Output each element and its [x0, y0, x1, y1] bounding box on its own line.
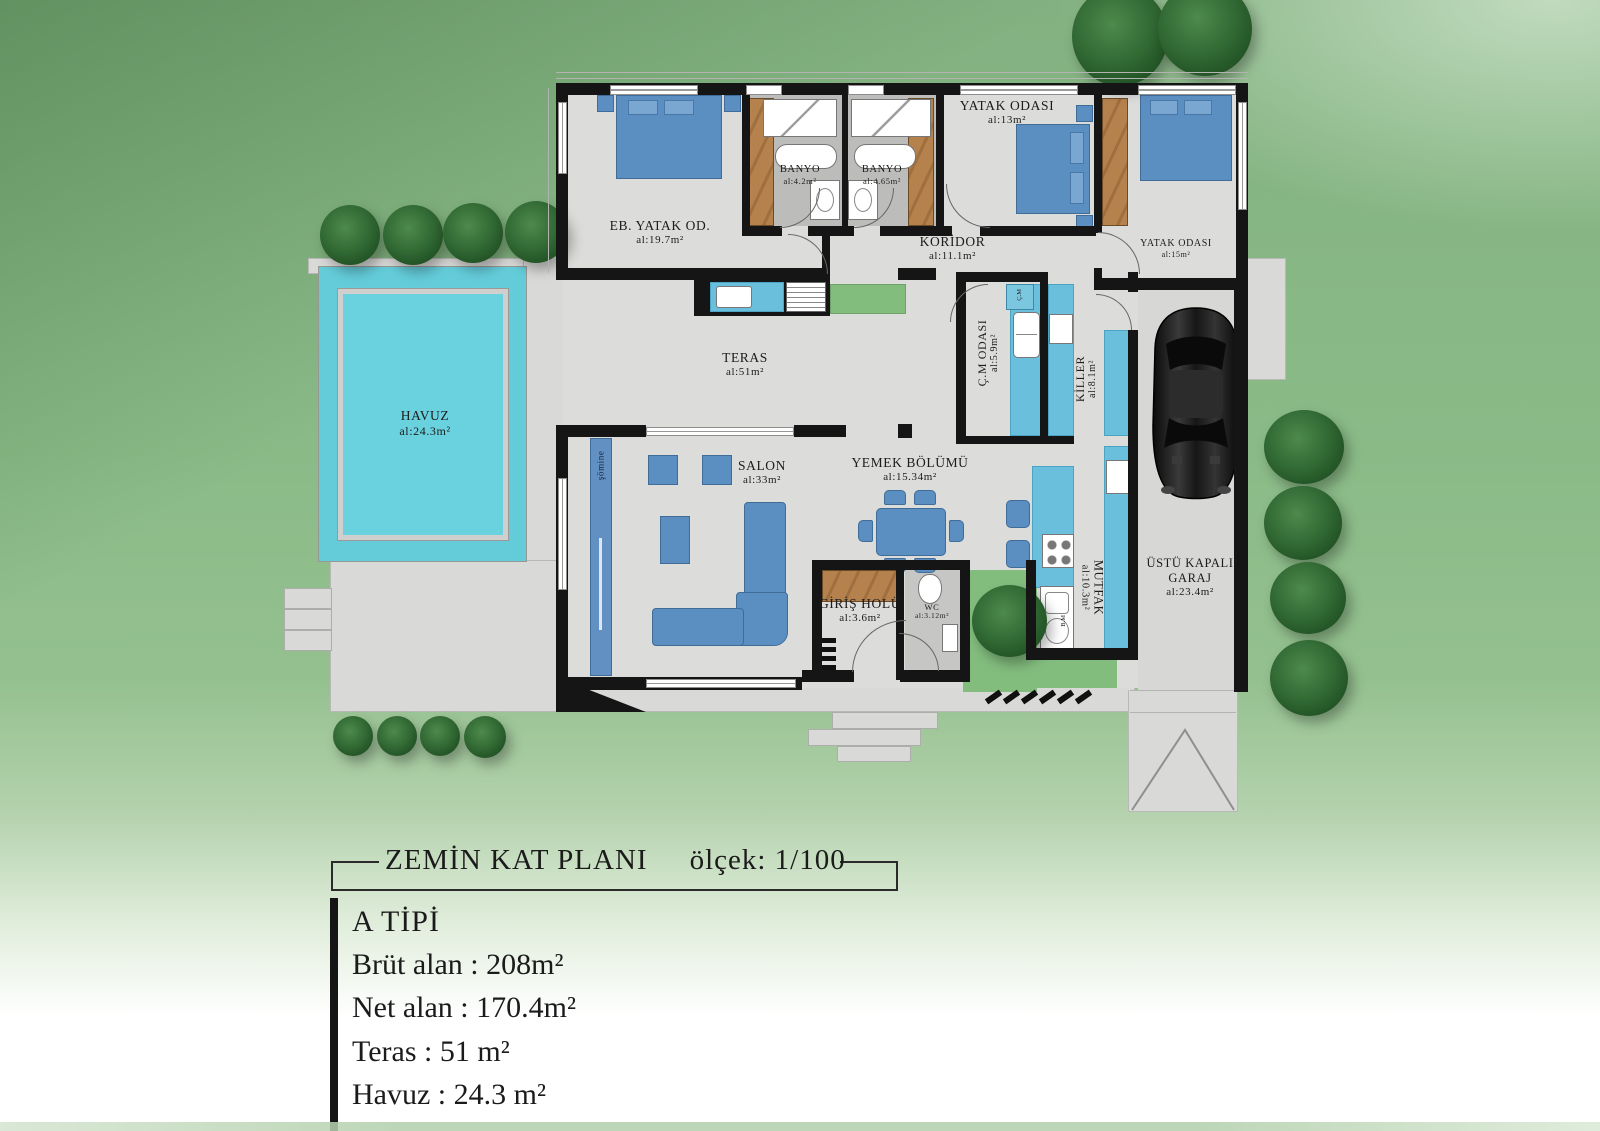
wall-bath-divider [842, 93, 848, 228]
laundry-sink [1013, 312, 1040, 358]
site-plan-canvas: HAVUZ al:24.3m² [0, 0, 1600, 1131]
armchair-1 [648, 455, 678, 485]
wall-bedroom23-a [1094, 83, 1102, 233]
room-label-garage: ÜSTÜ KAPALI GARAJ al:23.4m² [1140, 556, 1240, 598]
coffee-table [660, 516, 690, 564]
wall-kitchen-left-low [1026, 560, 1036, 658]
shower-2 [851, 99, 931, 137]
wall-pantry-right-b [1128, 330, 1138, 448]
dining-chair-2 [914, 490, 936, 505]
fireplace-label: şömine [596, 430, 607, 500]
bush-right-3 [1270, 562, 1346, 634]
window-bath1-top [746, 85, 782, 95]
shower-1 [763, 99, 837, 137]
entry-blind-2 [822, 647, 836, 652]
pool-area: Havuz : 24.3 m² [352, 1073, 772, 1116]
sofa-horizontal [652, 608, 744, 646]
tree-top-2 [1158, 0, 1252, 76]
wall-salon-top-b [794, 425, 846, 437]
dining-chair-6 [949, 520, 964, 542]
wall-master-right [742, 88, 750, 228]
window-bedroom2-top [960, 85, 1078, 95]
wall-master-bottom [556, 268, 706, 280]
wall-bath-bottom-1 [742, 226, 782, 236]
bedroom3-pillow-right [1184, 100, 1212, 115]
bush-right-1 [1264, 410, 1344, 484]
wall-terrace-right-stub [898, 268, 936, 280]
terrace-area: Teras : 51 m² [352, 1030, 772, 1073]
wardrobe-bedroom3 [1102, 98, 1128, 226]
terrace-bar-sink [716, 286, 752, 308]
net-area: Net alan : 170.4m² [352, 986, 772, 1029]
driveway-line [1130, 690, 1236, 691]
bush-right-4 [1270, 640, 1348, 716]
kitchen-island [1032, 466, 1074, 588]
room-label-bathroom1: BANYO al:4.2m² [762, 164, 838, 186]
window-bedroom3-right [1238, 102, 1247, 210]
gross-area: Brüt alan : 208m² [352, 943, 772, 986]
tree-top-1 [1072, 0, 1168, 86]
pool-steps-3 [284, 630, 332, 651]
window-salon-left [558, 478, 567, 590]
eave-line-top-1 [556, 72, 1248, 73]
wall-bedroom3-bottom [1094, 278, 1248, 290]
tree-pool-1 [320, 205, 380, 265]
master-nightstand-left [597, 95, 614, 112]
wall-terrace-post [898, 424, 912, 438]
wall-kitchen-right [1128, 448, 1138, 658]
pantry-counter-left [1048, 284, 1074, 436]
kitchen-fridge [1106, 460, 1130, 494]
window-bath2-top [848, 85, 884, 95]
terrace-planter [830, 284, 906, 314]
window-bedroom3-top [1138, 85, 1236, 95]
eave-line-top-2 [556, 78, 1248, 79]
info-block: A TİPİ Brüt alan : 208m² Net alan : 170.… [352, 900, 772, 1116]
wall-bath-bottom-2 [808, 226, 854, 236]
wall-garage-right [1234, 278, 1248, 692]
pool-steps-2 [284, 609, 332, 630]
room-label-bedroom2: YATAK ODASI al:13m² [932, 98, 1082, 127]
info-bar [330, 898, 338, 1131]
pantry-appliance [1049, 314, 1073, 344]
kitchen-stove [1042, 534, 1074, 568]
dining-table [876, 508, 946, 556]
wall-pantry-right-a [1128, 272, 1138, 292]
tree-bottom-1 [333, 716, 373, 756]
room-label-kitchen: MUTFAK al:10.3m² [1078, 526, 1105, 650]
pantry-counter-right [1104, 330, 1130, 436]
room-label-wc: WC al:3.12m² [902, 602, 962, 621]
master-bed-pillow-right [664, 100, 694, 115]
entry-blind-1 [822, 638, 836, 643]
type-label: A TİPİ [352, 900, 772, 943]
window-salon-bottom [646, 679, 796, 688]
room-label-laundry: Ç.M ODASI al:5.9m² [975, 293, 1001, 413]
dishwasher-label: B.M [1060, 607, 1068, 635]
master-nightstand-right [724, 95, 741, 112]
room-label-pantry: KİLLER al:8.1m² [1073, 319, 1099, 439]
wall-laundry-pantry [1040, 272, 1048, 444]
bush-right-2 [1264, 486, 1342, 560]
washing-machine-label: Ç.M [1016, 281, 1024, 309]
pool-deck-bottom [330, 560, 565, 712]
room-label-corridor: KORİDOR al:11.1m² [895, 234, 1010, 263]
plan-title-row: ZEMİN KAT PLANIölçek: 1/100 [385, 844, 885, 877]
driveway-chevron [1130, 726, 1236, 812]
room-label-bathroom2: BANYO al:4.65m² [844, 164, 920, 186]
wc-sink [942, 624, 958, 652]
wall-laundry-bottom [956, 436, 1074, 444]
bedroom2-pillow-bottom [1070, 172, 1084, 204]
title-box-tick-left [331, 861, 379, 863]
window-master-top [610, 85, 698, 95]
plan-title: ZEMİN KAT PLANI [385, 844, 648, 876]
wall-corner-wedge [556, 677, 646, 712]
bedroom3-pillow-left [1150, 100, 1178, 115]
eave-line-left [548, 88, 549, 273]
laundry-sink-divider [1016, 334, 1037, 335]
tree-pool-2 [383, 205, 443, 265]
tree-bottom-4 [464, 716, 506, 758]
window-salon-top [646, 427, 794, 436]
wall-kitchen-bottom [1026, 648, 1138, 660]
garage-side-pad [1246, 258, 1286, 380]
wall-laundry-top [956, 272, 1048, 282]
driveway-line2 [1130, 712, 1236, 713]
room-label-dining: YEMEK BÖLÜMÜ al:15.34m² [830, 455, 990, 484]
wall-entry-bottom-a [802, 670, 854, 682]
car [1150, 306, 1242, 502]
entry-steps-3 [837, 746, 911, 762]
tree-pool-3 [443, 203, 503, 263]
room-label-terrace: TERAS al:51m² [690, 350, 800, 379]
room-label-living-room: SALON al:33m² [707, 458, 817, 487]
entry-blind-3 [822, 656, 836, 661]
tree-bottom-2 [377, 716, 417, 756]
dining-chair-1 [884, 490, 906, 505]
room-label-master-bedroom: EB. YATAK OD. al:19.7m² [580, 218, 740, 247]
entry-steps-2 [808, 729, 921, 746]
wc-toilet [918, 574, 942, 604]
room-label-bedroom3: YATAK ODASI al:15m² [1116, 238, 1236, 259]
pool-steps-1 [284, 588, 332, 609]
room-label-pool: HAVUZ al:24.3m² [360, 408, 490, 438]
window-master-left [558, 102, 567, 174]
fireplace-slot [599, 538, 602, 630]
tree-bottom-3 [420, 716, 460, 756]
dining-chair-5 [858, 520, 873, 542]
bar-stool-1 [1006, 500, 1030, 528]
master-bed-pillow-left [628, 100, 658, 115]
entry-steps-1 [832, 712, 938, 729]
bedroom2-pillow-top [1070, 132, 1084, 164]
sofa-vertical [744, 502, 786, 606]
bottom-green-strip [0, 1122, 1600, 1131]
plan-scale: ölçek: 1/100 [690, 844, 846, 876]
entry-blind-4 [822, 665, 836, 670]
terrace-stairs-hatch [786, 282, 826, 312]
wall-entry-top [812, 560, 970, 570]
